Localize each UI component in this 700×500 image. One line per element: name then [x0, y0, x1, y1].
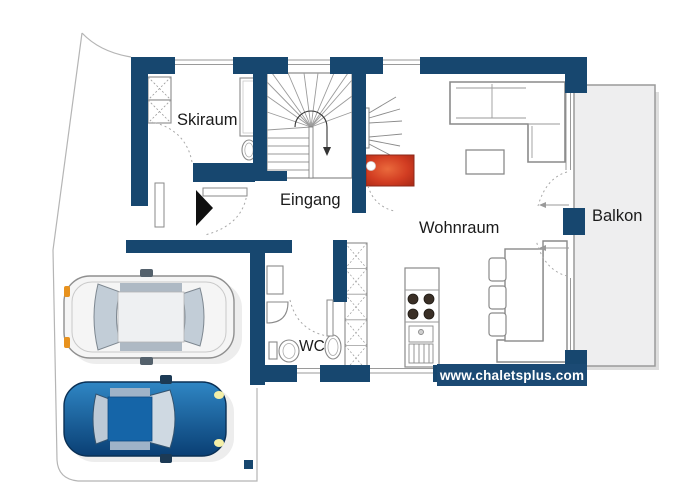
room-label-wohnraum: Wohnraum — [419, 219, 499, 238]
kitchen-unit-icon — [405, 268, 439, 367]
room-label-balkon: Balkon — [592, 207, 642, 226]
mirror — [140, 357, 153, 365]
car-blue — [64, 375, 234, 463]
headlight — [214, 391, 224, 399]
headlight — [64, 286, 70, 297]
entrance-door-leaf — [203, 188, 247, 196]
winder-staircase-icon — [267, 73, 352, 178]
room-label-skiraum: Skiraum — [177, 111, 238, 130]
floorplan-canvas: Skiraum Eingang Wohnraum WC Balkon www.c… — [0, 0, 700, 500]
fireplace-icon — [366, 155, 414, 186]
mirror — [160, 375, 172, 384]
floorplan-svg — [0, 0, 700, 500]
mirror — [160, 454, 172, 463]
ski-lockers-icon — [148, 77, 171, 123]
wc-toilet-tank — [269, 342, 277, 359]
wardrobe-column-icon — [345, 243, 367, 371]
wc-cabinet-icon — [267, 266, 283, 294]
dining-set-icon — [489, 241, 567, 362]
mirror — [140, 269, 153, 277]
kitchen-sink-icon — [409, 326, 433, 363]
dining-table-icon — [505, 249, 543, 341]
fence-post — [244, 460, 253, 469]
watermark-text: www.chaletsplus.com — [437, 366, 587, 386]
room-label-eingang: Eingang — [280, 191, 341, 210]
fireplace-flue-icon — [367, 162, 376, 171]
balcony-deck — [574, 85, 659, 370]
headlight — [64, 337, 70, 348]
car-white — [64, 269, 242, 365]
coffee-table-icon — [466, 150, 504, 174]
dining-chairs-icon — [489, 258, 506, 336]
headlight — [214, 439, 224, 447]
wc-door-leaf — [327, 300, 333, 336]
room-label-wc: WC — [299, 338, 325, 356]
skiraum-door-leaf — [155, 183, 164, 227]
